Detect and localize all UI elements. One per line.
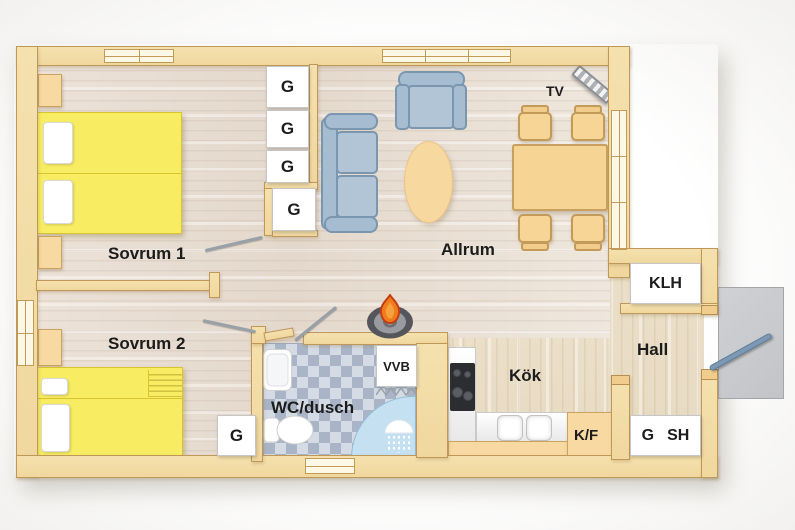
wardrobe-label: G — [281, 77, 294, 97]
dining-chair-back — [574, 242, 602, 251]
nightstand — [38, 236, 62, 269]
dining-chair — [571, 112, 605, 141]
wardrobe-g4: G — [272, 188, 316, 231]
closet-label: KLH — [649, 275, 682, 293]
armchair-seat — [408, 85, 454, 129]
window-sovrum1 — [104, 49, 174, 63]
closet-label-sh: SH — [667, 427, 689, 445]
sofa-armrest — [324, 113, 378, 130]
vvb-zigzag — [376, 387, 417, 396]
nightstand — [38, 74, 62, 107]
wall-divider-jamb — [209, 272, 220, 298]
tv-label: TV — [546, 83, 564, 99]
armchair-armrest — [452, 84, 467, 130]
dining-chair — [571, 214, 605, 243]
dining-chair-back — [521, 242, 549, 251]
closet-g-sh: G SH — [630, 415, 701, 456]
wall-kok-hall — [611, 375, 630, 460]
burner — [464, 371, 471, 378]
fireplace-icon — [364, 294, 416, 340]
sofa-cushion — [336, 175, 378, 218]
window-allrum-top — [382, 49, 511, 63]
folded-blanket — [148, 370, 182, 397]
wall-wc-right — [416, 343, 448, 458]
wardrobe-g1: G — [266, 66, 309, 108]
door-jamb — [701, 305, 718, 315]
dining-chair — [518, 214, 552, 243]
closet-klh: KLH — [630, 263, 701, 304]
room-label-allrum: Allrum — [441, 240, 495, 260]
wardrobe-g3: G — [266, 150, 309, 183]
stove — [450, 363, 475, 411]
room-label-hall: Hall — [637, 340, 668, 360]
window-sovrum2 — [17, 300, 34, 366]
water-heater-vvb: VVB — [376, 345, 417, 387]
shower-head-icon — [381, 416, 417, 454]
kitchen-sink — [526, 415, 552, 441]
kitchen-sink — [497, 415, 523, 441]
wall-right-hall-lower — [701, 370, 718, 478]
pillow — [43, 122, 73, 164]
wardrobe-label: G — [287, 200, 300, 220]
kf-label: K/F — [574, 427, 598, 444]
rug-oval — [404, 141, 453, 223]
toilet-icon — [263, 414, 315, 446]
room-label-kok: Kök — [509, 366, 541, 386]
dining-table — [512, 144, 608, 211]
dining-chair — [518, 112, 552, 141]
sofa-armrest — [324, 216, 378, 233]
bed-divider — [37, 173, 183, 174]
door-jamb — [701, 369, 718, 380]
pillow — [41, 404, 70, 452]
door-jamb — [611, 375, 630, 385]
wardrobe-g-corridor: G — [217, 415, 256, 456]
sofa-cushion — [336, 131, 378, 174]
wardrobe-g2: G — [266, 110, 309, 148]
room-label-wc: WC/dusch — [271, 398, 354, 418]
wardrobe-label: G — [281, 119, 294, 139]
nightstand — [38, 329, 62, 366]
burner — [463, 391, 473, 401]
wardrobe-label: G — [230, 426, 243, 446]
window-wc — [305, 458, 355, 474]
wall-bedroom-divider — [36, 280, 213, 291]
room-label-sovrum2: Sovrum 2 — [108, 334, 185, 354]
bed-divider — [37, 398, 184, 399]
window-allrum-right — [611, 110, 627, 250]
water-heater-label: VVB — [383, 359, 410, 374]
bathroom-sink-icon — [263, 349, 292, 391]
burner — [452, 387, 463, 398]
double-bed-sovrum1 — [36, 112, 182, 234]
bed-sovrum2 — [36, 367, 183, 462]
wardrobe-label: G — [281, 157, 294, 177]
wall-left — [16, 46, 38, 477]
pillow — [43, 180, 73, 224]
pillow — [41, 378, 68, 395]
wall-wardrobe-lip — [272, 230, 318, 237]
wall-wardrobe-right — [309, 64, 318, 188]
closet-label-g: G — [642, 427, 654, 445]
burner — [453, 369, 461, 377]
floor-plan: G G G G G KLH G SH VVB Sovrum 1 Sovrum 2… — [0, 0, 795, 530]
room-label-sovrum1: Sovrum 1 — [108, 244, 185, 264]
